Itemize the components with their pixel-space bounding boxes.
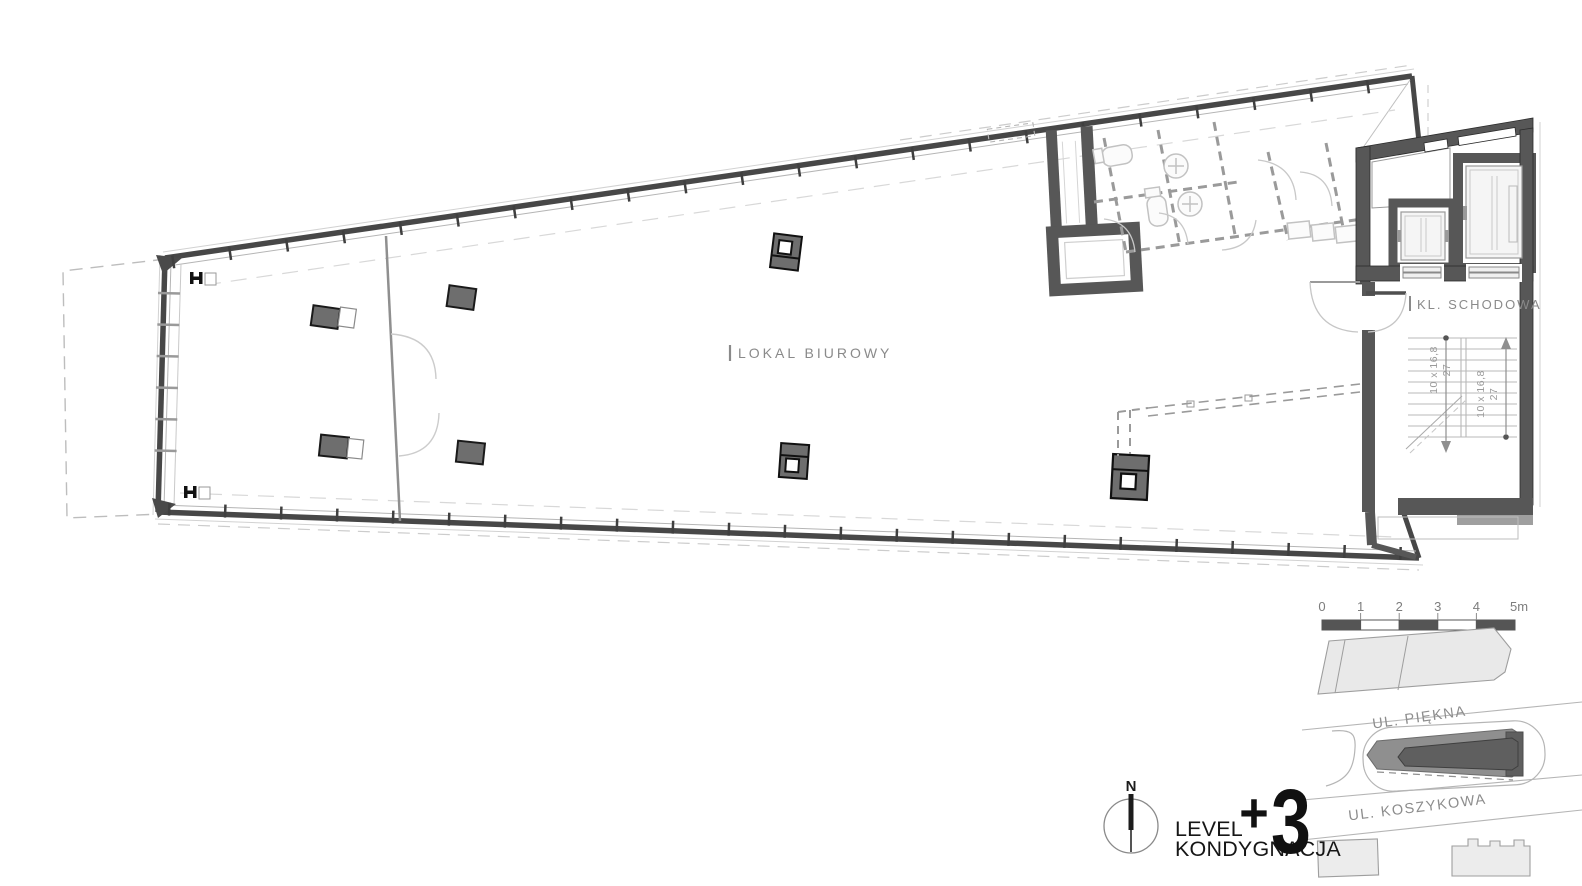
stair-flight2-riser-dim: 10 x 16,8 (1475, 370, 1487, 418)
restroom-area (1041, 122, 1362, 296)
scale-bar: 0 1 2 3 4 5m (1318, 599, 1528, 630)
architectural-drawing-sheet: 10 x 16,8 27 10 x 16,8 27 KL. SCHODOWA L… (0, 0, 1582, 886)
h-column-marker (190, 272, 216, 285)
scale-label-1: 1 (1357, 599, 1364, 614)
column (311, 303, 357, 331)
stair-room-label: KL. SCHODOWA (1417, 297, 1542, 312)
scale-label-2: 2 (1396, 599, 1403, 614)
street-bottom-label: UL. KOSZYKOWA (1348, 792, 1488, 825)
stair-treads (1408, 338, 1517, 437)
elevator-car-large (1463, 166, 1522, 258)
site-neighbor-block-castellated (1452, 839, 1530, 876)
stairwell: 10 x 16,8 27 10 x 16,8 27 KL. SCHODOWA (1310, 282, 1542, 557)
title-block: N LEVEL KONDYGNACJA + 3 (1104, 770, 1341, 873)
core: 10 x 16,8 27 10 x 16,8 27 KL. SCHODOWA (1310, 118, 1542, 557)
office-room-label-group: LOKAL BIUROWY (730, 345, 892, 361)
north-label: N (1126, 778, 1137, 795)
column-with-shaft (1111, 454, 1149, 500)
column (456, 441, 485, 465)
site-map: UL. PIĘKNA UL. KOSZYKOWA (1302, 628, 1582, 877)
elevator-car-small (1397, 212, 1449, 260)
dashed-partition-stub (1118, 384, 1360, 456)
scale-label-0: 0 (1318, 599, 1325, 614)
level-value-plus: + (1239, 783, 1268, 845)
site-subject-building (1367, 729, 1523, 780)
column-with-shaft (770, 233, 802, 270)
scale-label-3: 3 (1434, 599, 1441, 614)
street-curb-line (1302, 810, 1582, 840)
site-neighbor-block-top (1318, 628, 1511, 694)
scale-label-5m: 5m (1510, 599, 1528, 614)
office-room-label: LOKAL BIUROWY (738, 345, 892, 361)
level-value-digit: 3 (1271, 770, 1311, 873)
toilet-icon (1101, 144, 1134, 168)
plot-boundary-dashed (63, 259, 166, 518)
partition-with-doors (386, 236, 439, 521)
door-swing-arc (1310, 282, 1358, 332)
floor-plan: 10 x 16,8 27 10 x 16,8 27 KL. SCHODOWA L… (63, 65, 1542, 570)
north-arrow-icon: N (1104, 778, 1158, 853)
stair-flight2-tread-dim: 27 (1488, 388, 1500, 401)
door-swing-arc (391, 334, 436, 379)
column-with-shaft (779, 443, 809, 479)
columns (184, 233, 1360, 499)
column (447, 285, 477, 310)
stair-flight1-tread-dim: 27 (1441, 364, 1453, 377)
door-swing-arc (399, 413, 439, 456)
scale-label-4: 4 (1473, 599, 1480, 614)
column (319, 435, 364, 460)
h-column-marker (184, 486, 210, 499)
door-swing-arc (1368, 293, 1406, 332)
toilet-icon (1146, 195, 1169, 227)
facade-outer-offset-lines (153, 65, 1540, 570)
site-curve-detail (1326, 731, 1355, 786)
stair-flight1-riser-dim: 10 x 16,8 (1428, 346, 1440, 394)
